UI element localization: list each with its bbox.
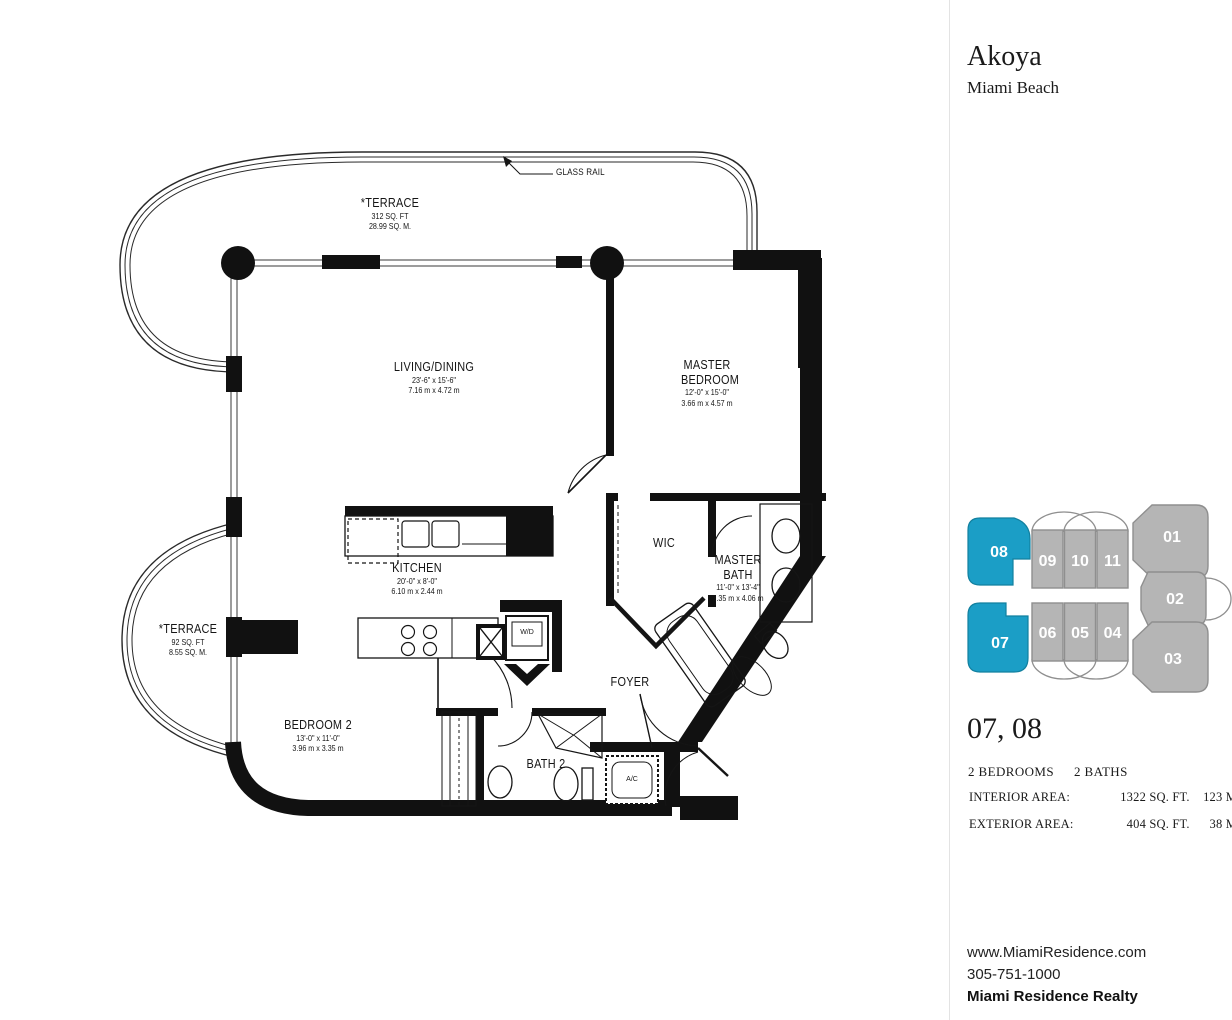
room-label-bedroom-2: BEDROOM 2 13'-0" x 11'-0" 3.96 m x 3.35 … bbox=[284, 718, 352, 754]
glass-rail bbox=[120, 152, 757, 372]
room-label-terrace-lower: *TERRACE 92 SQ. FT 8.55 SQ. M. bbox=[159, 622, 217, 658]
room-name: LIVING/DINING bbox=[394, 360, 474, 375]
room-dim: 13'-0" x 11'-0" bbox=[296, 733, 339, 744]
interior-column bbox=[240, 620, 298, 654]
keyplan-label-10: 10 bbox=[1071, 553, 1089, 570]
room-dim: 11'-0" x 13'-4" bbox=[716, 582, 759, 593]
room-name: BEDROOM 2 bbox=[284, 718, 352, 733]
room-dim: 92 SQ. FT bbox=[172, 637, 205, 648]
keyplan-label-08: 08 bbox=[990, 544, 1008, 561]
area-sqm: 123 M² bbox=[1190, 789, 1232, 805]
interior-area-row: INTERIOR AREA: 1322 SQ. FT. 123 M² bbox=[969, 789, 1232, 805]
kitchen-lower-counter bbox=[358, 618, 506, 660]
area-sqft: 1322 SQ. FT. bbox=[1113, 789, 1190, 805]
room-dim: 20'-0" x 8'-0" bbox=[397, 576, 437, 587]
room-name: KITCHEN bbox=[392, 561, 442, 576]
company-name: Miami Residence Realty bbox=[967, 986, 1146, 1008]
room-name: FOYER bbox=[611, 675, 650, 690]
keyplan: 08 09 10 11 01 02 03 07 06 05 04 bbox=[968, 505, 1231, 692]
keyplan-label-05: 05 bbox=[1071, 625, 1089, 642]
bathtub bbox=[652, 601, 747, 709]
room-dim: 7.16 m x 4.72 m bbox=[408, 385, 459, 396]
keyplan-label-09: 09 bbox=[1039, 553, 1057, 570]
room-dim: 3.66 m x 4.57 m bbox=[681, 398, 732, 409]
room-label-terrace-top: *TERRACE 312 SQ. FT 28.99 SQ. M. bbox=[361, 196, 419, 232]
room-dim: 312 SQ. FT bbox=[372, 211, 409, 222]
glass-rail-leader bbox=[503, 156, 553, 174]
room-dim: 12'-0" x 15'-0" bbox=[685, 387, 729, 398]
column-round-left bbox=[221, 246, 255, 280]
room-dim: 28.99 SQ. M. bbox=[369, 221, 411, 232]
room-label-bath-2: BATH 2 bbox=[527, 757, 566, 772]
keyplan-label-03: 03 bbox=[1164, 651, 1182, 668]
area-sqm: 38 M² bbox=[1190, 816, 1232, 832]
washer-dryer-closet bbox=[500, 600, 562, 686]
brand-block: Akoya Miami Beach bbox=[967, 42, 1059, 98]
baths-count: 2 BATHS bbox=[1074, 764, 1128, 779]
room-dim: 6.10 m x 2.44 m bbox=[391, 586, 442, 597]
bedroom2-closet bbox=[442, 712, 476, 806]
phone: 305-751-1000 bbox=[967, 964, 1146, 986]
website: www.MiamiResidence.com bbox=[967, 942, 1146, 964]
unit-config: 2 BEDROOMS2 BATHS bbox=[968, 764, 1148, 780]
project-subtitle: Miami Beach bbox=[967, 78, 1059, 98]
plan-graphics: 08 09 10 11 01 02 03 07 06 05 04 bbox=[0, 0, 1232, 1020]
room-dim: 8.55 SQ. M. bbox=[169, 647, 207, 658]
bedrooms-count: 2 BEDROOMS bbox=[968, 764, 1054, 779]
glass-rail-label: GLASS RAIL bbox=[556, 167, 605, 178]
keyplan-label-01: 01 bbox=[1163, 529, 1181, 546]
room-label-living-dining: LIVING/DINING 23'-6" x 15'-6" 7.16 m x 4… bbox=[394, 360, 474, 396]
room-name: MASTER BATH bbox=[712, 553, 764, 582]
keyplan-label-04: 04 bbox=[1104, 625, 1122, 642]
kitchen-upper-counter bbox=[345, 506, 553, 563]
toilet bbox=[554, 767, 593, 801]
room-dim: 23'-6" x 15'-6" bbox=[412, 375, 456, 386]
room-name: *TERRACE bbox=[159, 622, 217, 637]
room-name: *TERRACE bbox=[361, 196, 419, 211]
sink bbox=[488, 766, 512, 798]
contact-block: www.MiamiResidence.com 305-751-1000 Miam… bbox=[967, 942, 1146, 1008]
keyplan-label-06: 06 bbox=[1039, 625, 1057, 642]
keyplan-label-02: 02 bbox=[1166, 591, 1184, 608]
room-name: WIC bbox=[653, 536, 675, 551]
floorplan-page: 08 09 10 11 01 02 03 07 06 05 04 GLASS R… bbox=[0, 0, 1232, 1020]
room-dim: 3.96 m x 3.35 m bbox=[292, 743, 343, 754]
room-label-master-bedroom: MASTER BEDROOM 12'-0" x 15'-0" 3.66 m x … bbox=[681, 358, 733, 408]
room-dim: 3.35 m x 4.06 m bbox=[712, 593, 763, 604]
area-label: INTERIOR AREA: bbox=[969, 789, 1113, 805]
room-label-wic: WIC bbox=[653, 536, 675, 551]
keyplan-label-11: 11 bbox=[1104, 553, 1121, 570]
room-name: MASTER BEDROOM bbox=[681, 358, 733, 387]
room-label-master-bath: MASTER BATH 11'-0" x 13'-4" 3.35 m x 4.0… bbox=[712, 553, 764, 603]
area-table: INTERIOR AREA: 1322 SQ. FT. 123 M² EXTER… bbox=[969, 789, 1232, 843]
ac-label: A/C bbox=[626, 776, 638, 783]
wd-door bbox=[504, 664, 550, 686]
keyplan-label-07: 07 bbox=[991, 635, 1009, 652]
room-name: BATH 2 bbox=[527, 757, 566, 772]
sink bbox=[772, 519, 800, 553]
exterior-area-row: EXTERIOR AREA: 404 SQ. FT. 38 M² bbox=[969, 816, 1232, 832]
unit-numbers-heading: 07, 08 bbox=[967, 712, 1042, 746]
room-label-kitchen: KITCHEN 20'-0" x 8'-0" 6.10 m x 2.44 m bbox=[391, 561, 442, 597]
area-sqft: 404 SQ. FT. bbox=[1113, 816, 1190, 832]
wd-label: W/D bbox=[520, 629, 534, 636]
project-title: Akoya bbox=[967, 42, 1059, 73]
area-label: EXTERIOR AREA: bbox=[969, 816, 1113, 832]
room-label-foyer: FOYER bbox=[611, 675, 650, 690]
